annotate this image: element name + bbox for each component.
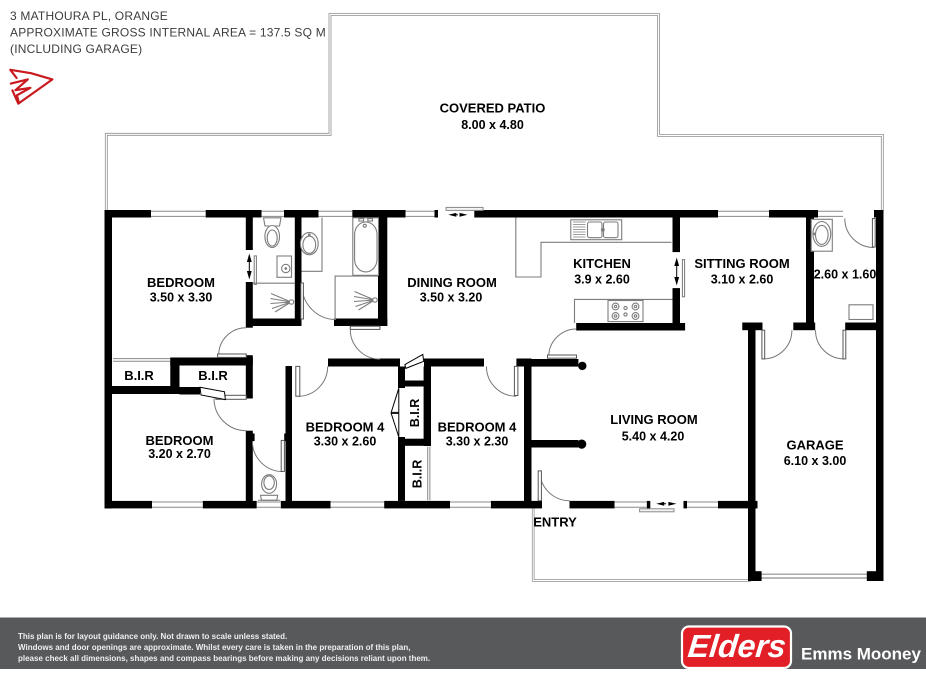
svg-text:B.I.R: B.I.R xyxy=(411,460,425,488)
svg-text:please check all dimensions, s: please check all dimensions, shapes and … xyxy=(18,654,430,663)
svg-text:8.00 x 4.80: 8.00 x 4.80 xyxy=(461,118,524,132)
svg-text:This plan is for layout guidan: This plan is for layout guidance only. N… xyxy=(18,632,287,641)
svg-text:B.I.R: B.I.R xyxy=(198,368,228,383)
svg-text:BEDROOM: BEDROOM xyxy=(147,275,215,290)
svg-text:B.I.R: B.I.R xyxy=(124,368,154,383)
svg-text:B.I.R: B.I.R xyxy=(408,399,422,427)
svg-text:3.10 x 2.60: 3.10 x 2.60 xyxy=(711,273,774,287)
svg-text:3.50 x 3.30: 3.50 x 3.30 xyxy=(150,291,213,305)
svg-text:BEDROOM 4: BEDROOM 4 xyxy=(438,420,518,435)
svg-text:BEDROOM 4: BEDROOM 4 xyxy=(306,420,386,435)
svg-text:KITCHEN: KITCHEN xyxy=(573,256,631,271)
svg-text:SITTING ROOM: SITTING ROOM xyxy=(694,256,789,271)
svg-text:LIVING ROOM: LIVING ROOM xyxy=(610,412,697,427)
svg-text:APPROXIMATE GROSS INTERNAL ARE: APPROXIMATE GROSS INTERNAL AREA = 137.5 … xyxy=(10,26,326,40)
svg-text:2.60 x 1.60: 2.60 x 1.60 xyxy=(814,268,877,282)
svg-text:(INCLUDING GARAGE): (INCLUDING GARAGE) xyxy=(10,42,142,56)
svg-text:3.50 x 3.20: 3.50 x 3.20 xyxy=(420,291,483,305)
svg-text:DINING ROOM: DINING ROOM xyxy=(407,275,497,290)
svg-text:GARAGE: GARAGE xyxy=(786,438,843,453)
svg-text:5.40 x 4.20: 5.40 x 4.20 xyxy=(622,430,685,444)
svg-text:BEDROOM: BEDROOM xyxy=(146,433,214,448)
svg-text:COVERED PATIO: COVERED PATIO xyxy=(440,101,546,116)
svg-text:Elders: Elders xyxy=(686,628,788,664)
svg-text:3.9 x 2.60: 3.9 x 2.60 xyxy=(574,273,630,287)
svg-text:ENTRY: ENTRY xyxy=(533,515,577,530)
svg-text:3.20 x 2.70: 3.20 x 2.70 xyxy=(148,447,211,461)
svg-text:Emms Mooney: Emms Mooney xyxy=(801,645,922,664)
svg-text:Windows and door openings are: Windows and door openings are approximat… xyxy=(18,643,410,652)
svg-text:3 MATHOURA PL, ORANGE: 3 MATHOURA PL, ORANGE xyxy=(10,9,168,23)
svg-text:6.10 x 3.00: 6.10 x 3.00 xyxy=(784,454,847,468)
svg-text:3.30 x 2.60: 3.30 x 2.60 xyxy=(314,435,377,449)
svg-text:3.30 x 2.30: 3.30 x 2.30 xyxy=(446,435,509,449)
